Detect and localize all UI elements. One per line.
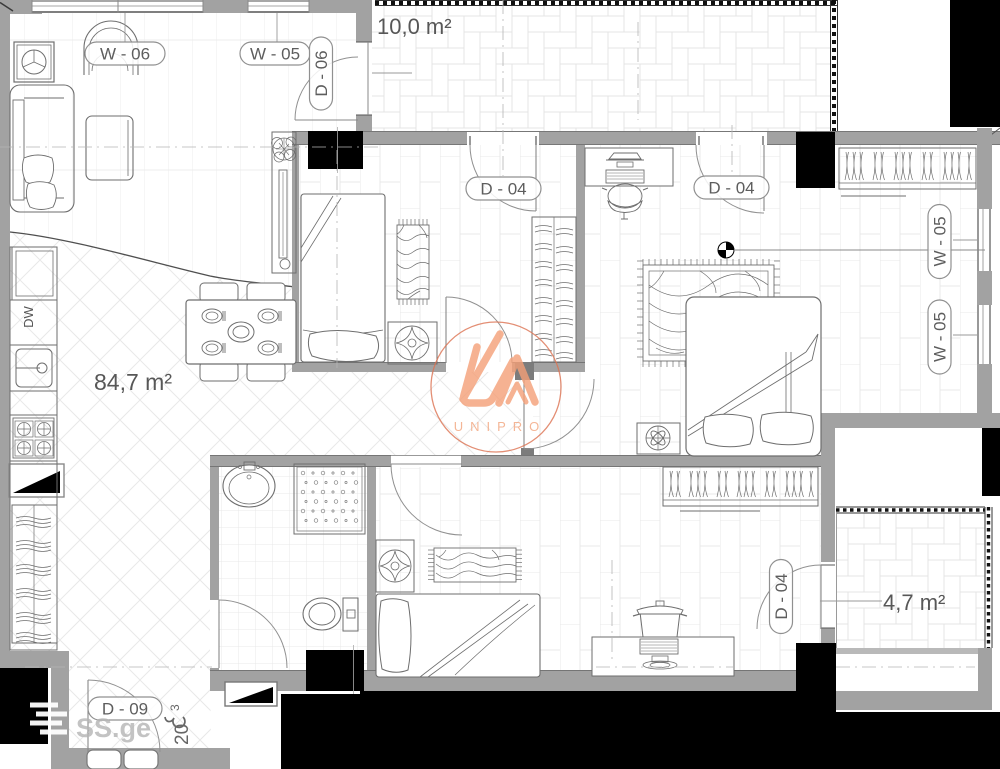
svg-text:W - 05: W - 05 [930, 312, 949, 362]
svg-text:4,7 m²: 4,7 m² [883, 590, 945, 615]
svg-text:D - 06: D - 06 [312, 50, 331, 96]
svg-text:3: 3 [168, 704, 182, 711]
svg-text:SS.ge: SS.ge [76, 713, 151, 743]
svg-text:10,0 m²: 10,0 m² [377, 14, 452, 39]
svg-text:D - 04: D - 04 [480, 179, 526, 198]
svg-text:W - 05: W - 05 [930, 216, 949, 266]
svg-text:W - 05: W - 05 [250, 44, 300, 63]
svg-text:W - 06: W - 06 [100, 44, 150, 63]
svg-text:84,7 m²: 84,7 m² [94, 369, 172, 395]
svg-text:D - 04: D - 04 [772, 573, 791, 619]
svg-text:UNIPRO: UNIPRO [454, 419, 547, 434]
svg-text:DW: DW [21, 305, 36, 327]
svg-text:D - 04: D - 04 [708, 178, 754, 197]
